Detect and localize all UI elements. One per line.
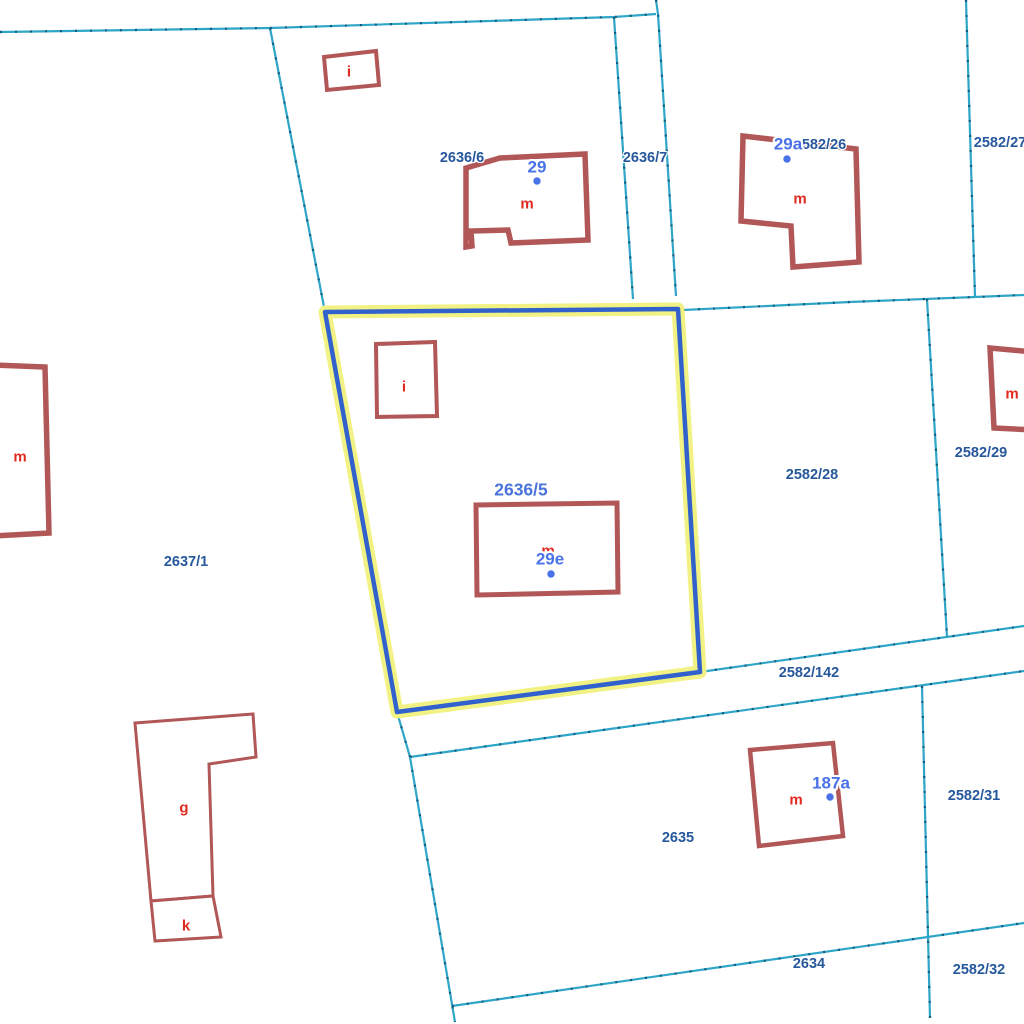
building-k xyxy=(151,896,221,941)
boundary-2634-north xyxy=(452,923,1024,1006)
house-number-dot xyxy=(533,177,542,186)
building-house-29e xyxy=(476,503,618,595)
boundary-north xyxy=(0,14,656,32)
house-number-dot xyxy=(783,155,792,164)
buildings-layer xyxy=(0,51,1024,941)
map-canvas[interactable] xyxy=(0,0,1024,1024)
boundary-142-north xyxy=(700,626,1024,672)
building-i-north xyxy=(324,51,379,90)
boundary-28-29 xyxy=(927,299,947,637)
house-number-dot xyxy=(547,570,556,579)
house-number-dot xyxy=(826,793,835,802)
building-house-29 xyxy=(466,154,588,247)
boundary-mid-east xyxy=(683,295,1024,310)
boundary-northwest-diag xyxy=(270,28,325,312)
boundary-north-ticks xyxy=(0,14,656,32)
cadastral-map: i m m m m i m g k m 2636/6 2636/7 2582/2… xyxy=(0,0,1024,1024)
boundary-2635-west xyxy=(397,712,455,1022)
boundary-strip-east xyxy=(656,0,676,296)
building-g xyxy=(135,714,256,901)
building-m-west xyxy=(0,365,49,536)
building-i-selected xyxy=(376,342,437,417)
building-house-29a xyxy=(741,136,859,267)
boundary-26-27 xyxy=(966,0,975,297)
building-m-east xyxy=(990,348,1024,430)
